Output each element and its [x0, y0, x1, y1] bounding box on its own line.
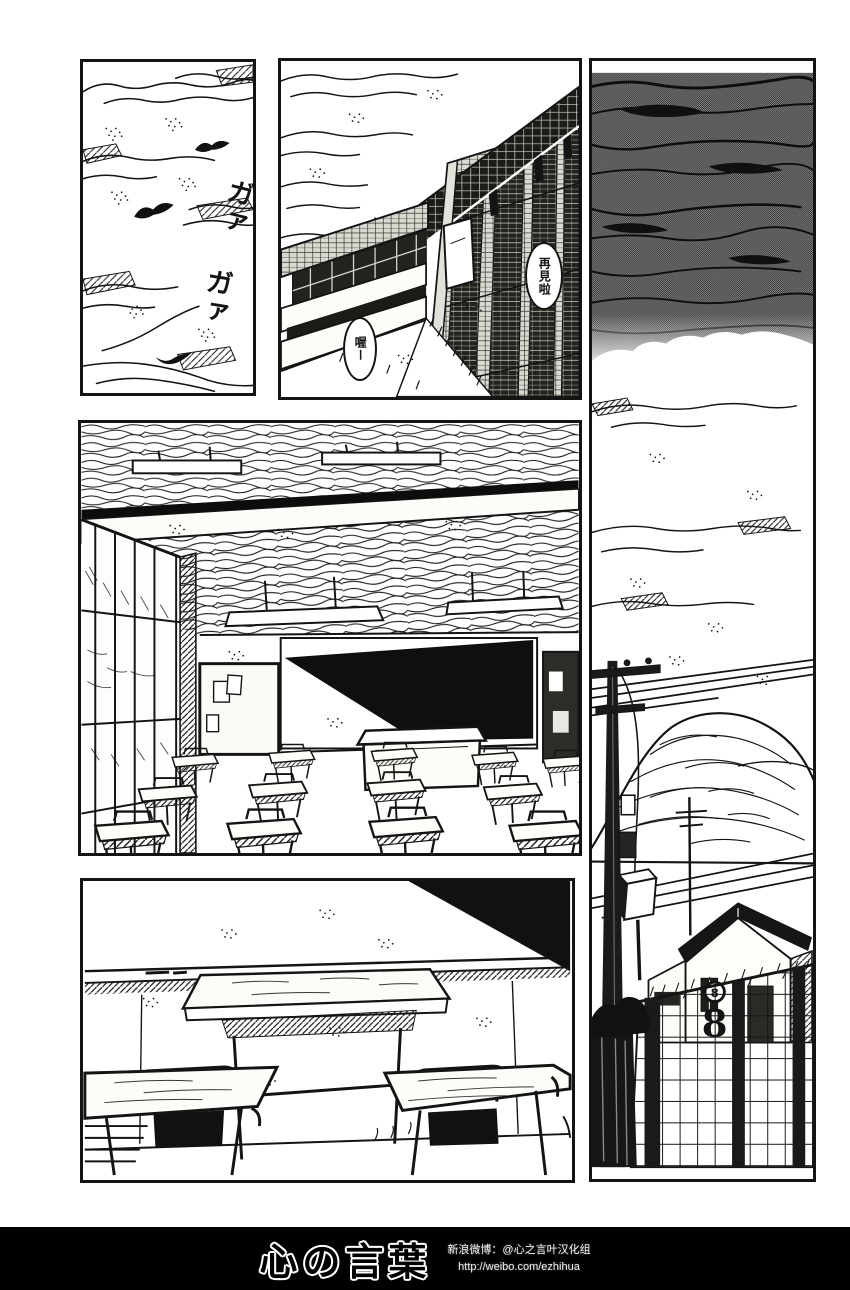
classroom-wide-art	[81, 423, 579, 853]
panel-street-sky: 8 8	[589, 58, 816, 1182]
panel-school-building: 再見啦 喔ー	[278, 58, 582, 400]
footer-credit-bar: 心の言葉 新浪微博：@心之言叶汉化组 http://weibo.com/ezhi…	[0, 1227, 850, 1290]
scanlation-logo: 心の言葉	[259, 1231, 431, 1286]
panel-sky-crows: ガァ ガァ	[80, 59, 256, 396]
credit-weibo: 新浪微博：@心之言叶汉化组	[447, 1242, 590, 1259]
panel-classroom-wide	[78, 420, 582, 856]
street-sky-art: 8 8	[592, 61, 813, 1179]
speech-text-farewell: 再見啦	[538, 257, 551, 296]
classroom-front-art	[83, 881, 572, 1180]
speech-bubble-farewell: 再見啦	[525, 242, 563, 310]
speech-bubble-reply: 喔ー	[343, 317, 377, 381]
credit-text: 新浪微博：@心之言叶汉化组 http://weibo.com/ezhihua	[447, 1242, 590, 1275]
panel-classroom-front	[80, 878, 575, 1183]
school-building-art	[281, 61, 579, 397]
credit-url: http://weibo.com/ezhihua	[447, 1259, 590, 1276]
manga-page: ガァ ガァ	[0, 0, 850, 1290]
speech-text-reply: 喔ー	[354, 336, 367, 362]
